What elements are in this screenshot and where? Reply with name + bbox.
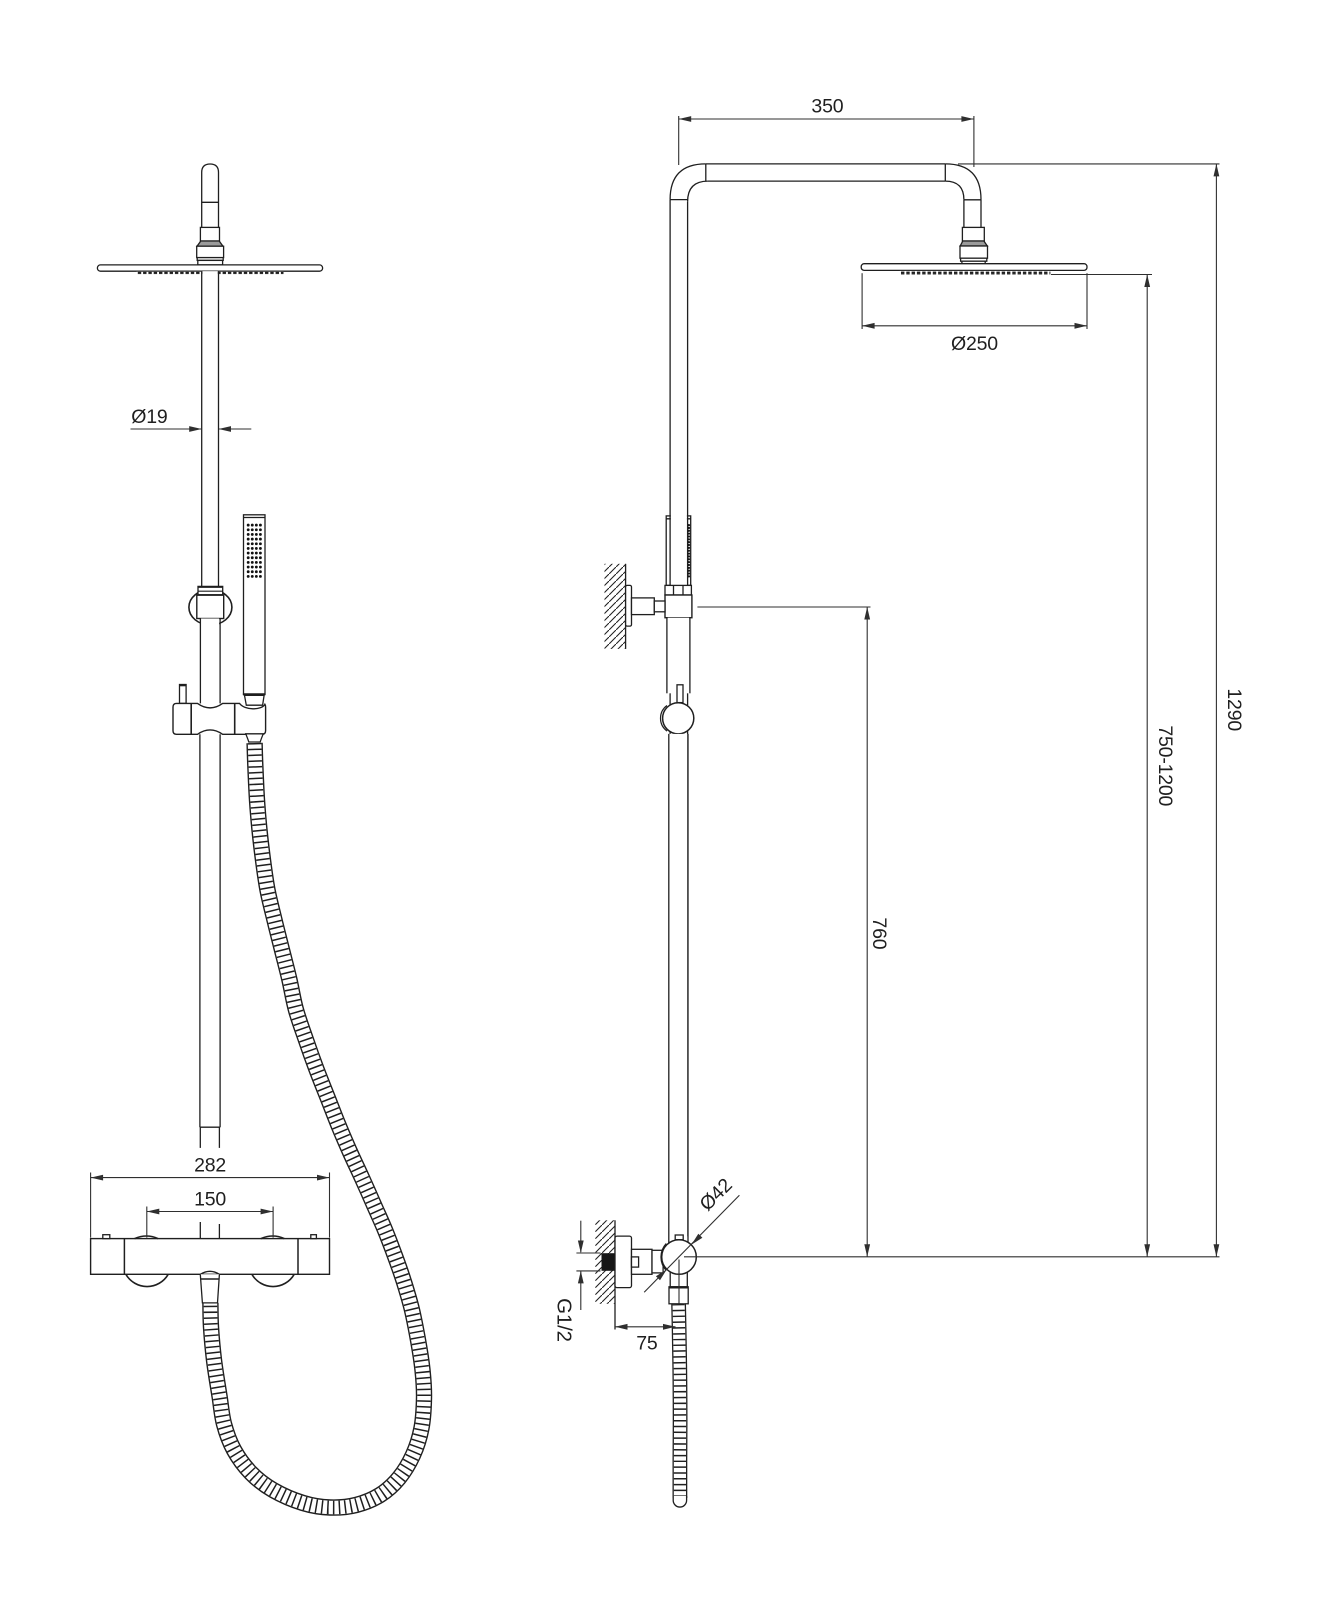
svg-text:Ø250: Ø250: [951, 333, 998, 355]
svg-text:Ø19: Ø19: [131, 406, 167, 428]
svg-text:750-1200: 750-1200: [1154, 725, 1176, 806]
svg-text:75: 75: [636, 1332, 658, 1354]
svg-text:282: 282: [194, 1154, 226, 1176]
svg-text:350: 350: [811, 95, 843, 117]
svg-text:150: 150: [194, 1188, 226, 1210]
svg-text:G1/2: G1/2: [553, 1298, 576, 1342]
svg-text:1290: 1290: [1223, 688, 1245, 731]
svg-text:760: 760: [868, 917, 890, 949]
